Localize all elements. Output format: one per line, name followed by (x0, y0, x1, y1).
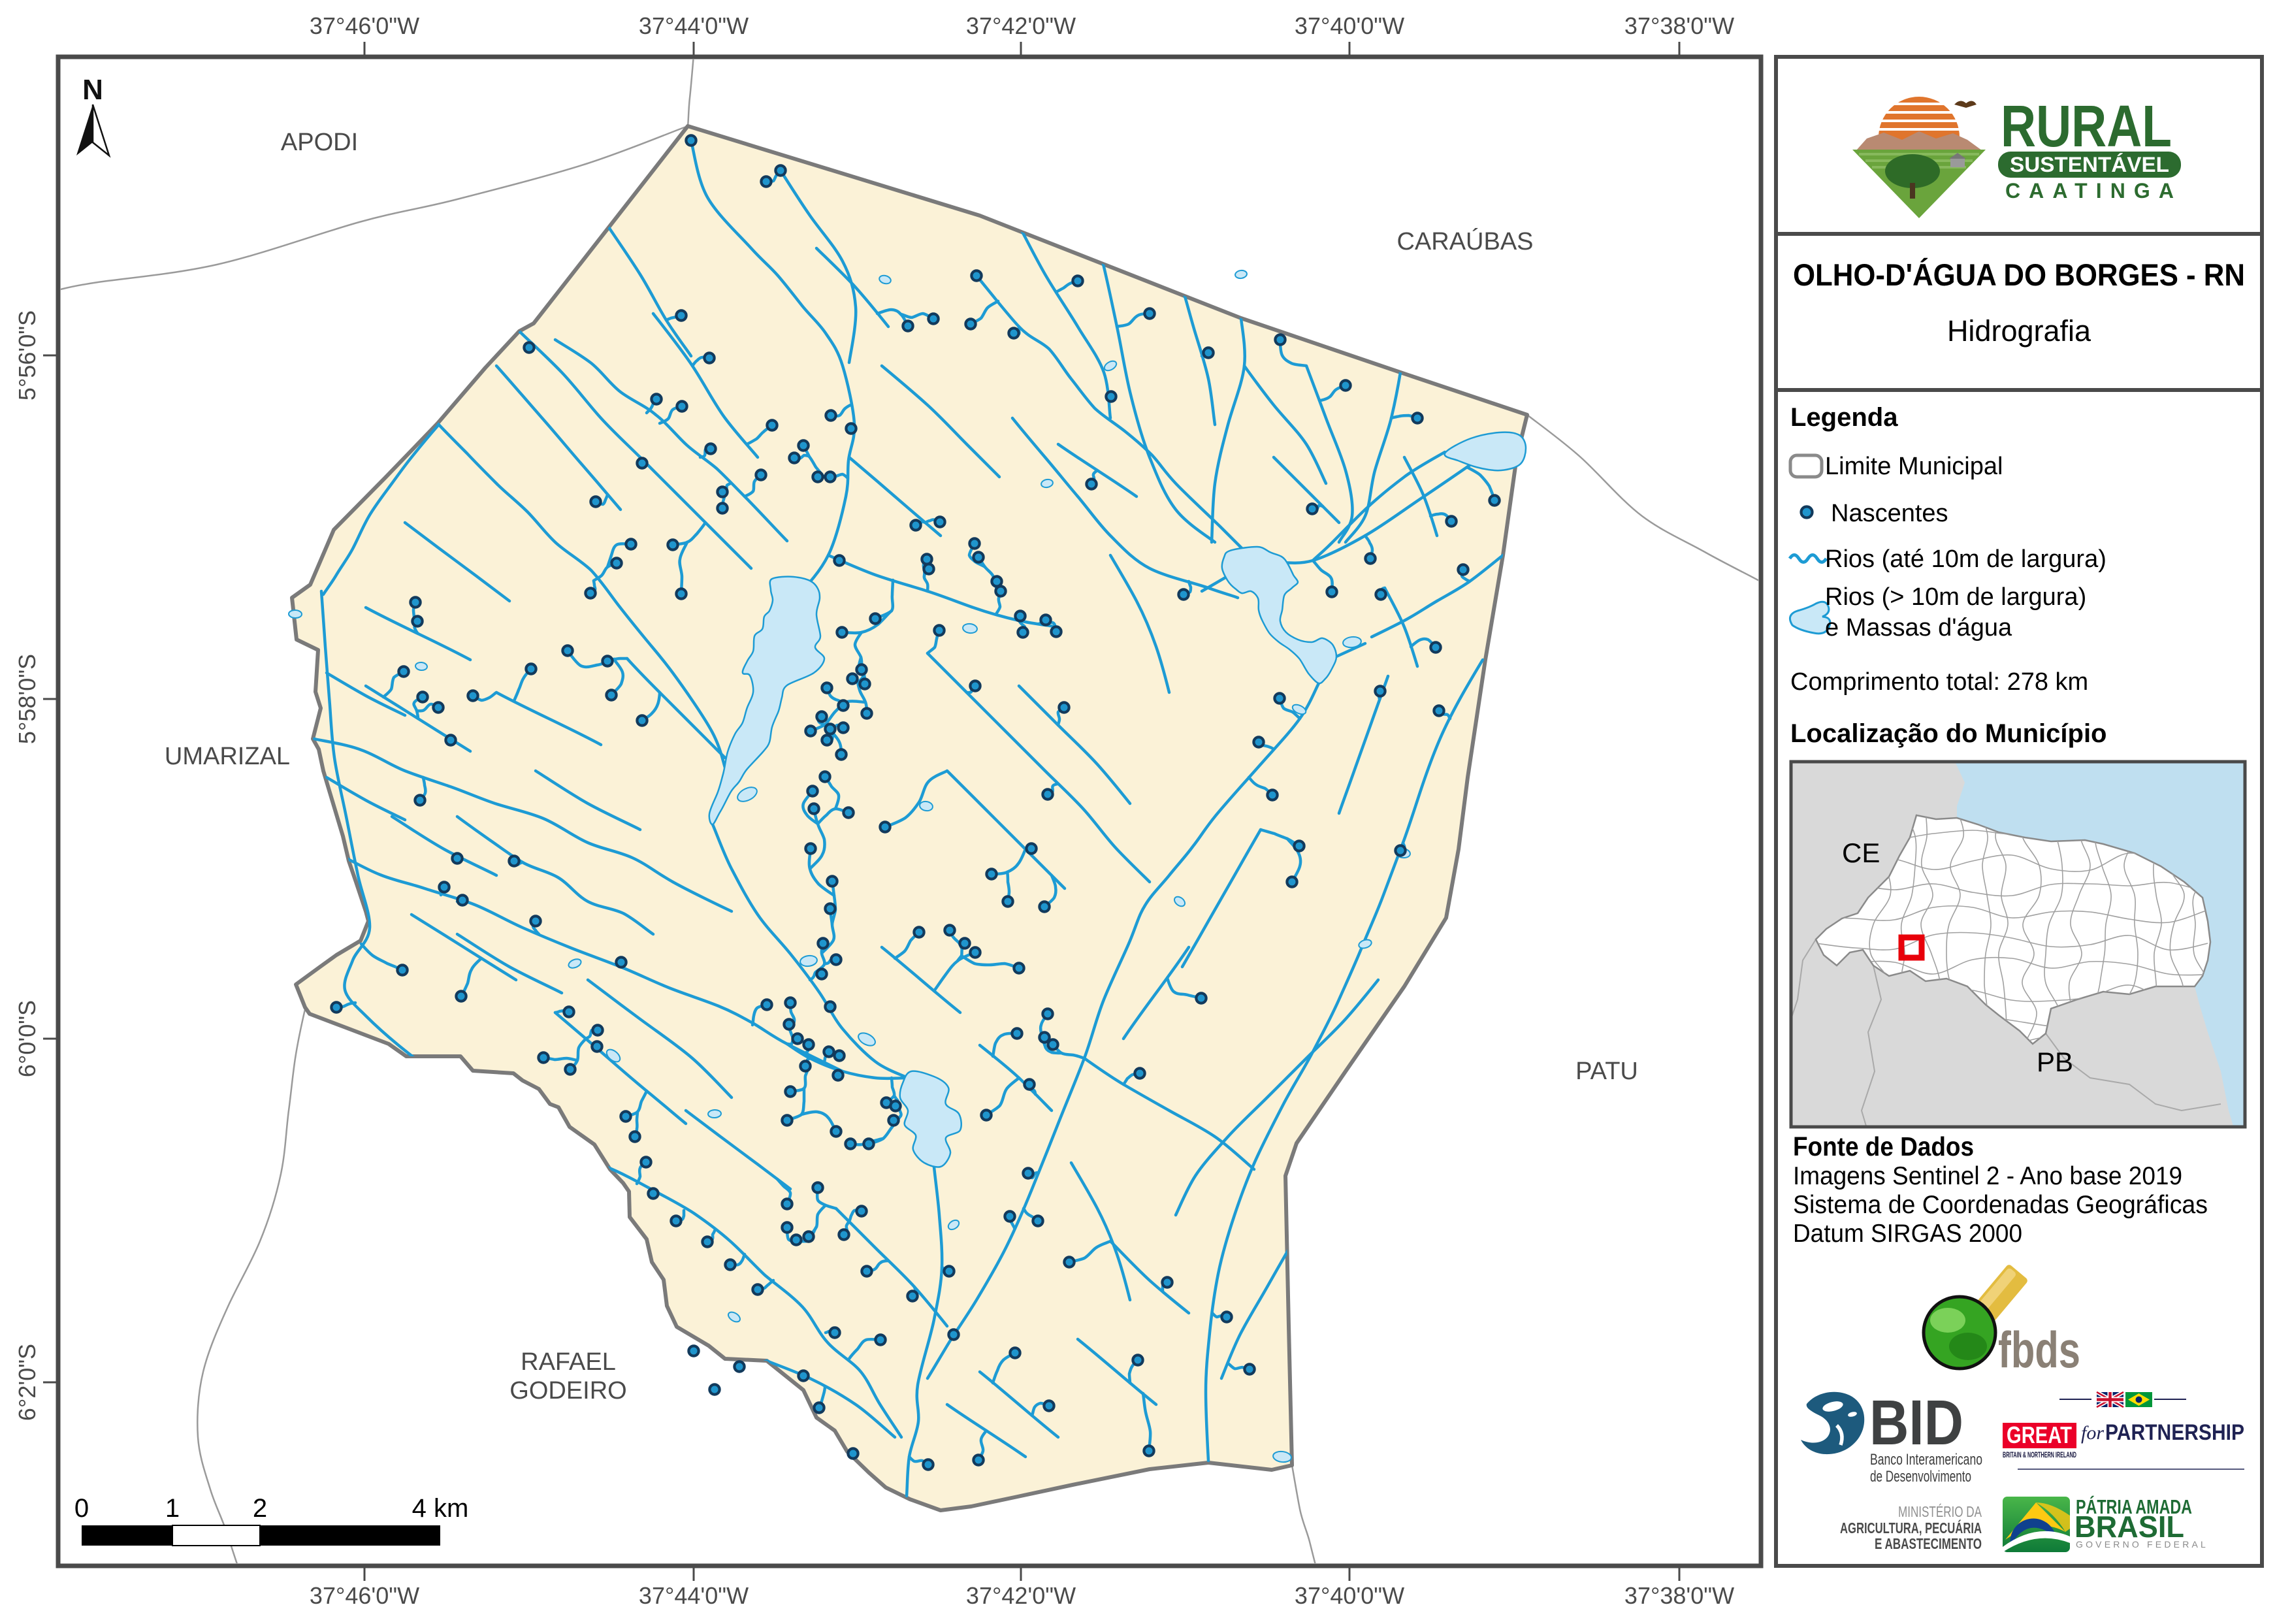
svg-text:GODEIRO: GODEIRO (509, 1377, 626, 1405)
svg-text:Fonte de Dados: Fonte de Dados (1793, 1131, 1974, 1161)
svg-text:37°46'0"W: 37°46'0"W (310, 12, 419, 39)
svg-text:SUSTENTÁVEL: SUSTENTÁVEL (2010, 153, 2169, 176)
svg-text:BRITAIN & NORTHERN IRELAND: BRITAIN & NORTHERN IRELAND (2003, 1450, 2076, 1459)
svg-text:6°0'0"S: 6°0'0"S (14, 1000, 40, 1077)
svg-text:Imagens Sentinel 2 - Ano base: Imagens Sentinel 2 - Ano base 2019 (1793, 1162, 2182, 1190)
svg-text:Localização do Município: Localização do Município (1790, 719, 2107, 748)
svg-text:37°46'0"W: 37°46'0"W (310, 1582, 419, 1609)
svg-text:37°42'0"W: 37°42'0"W (966, 12, 1076, 39)
svg-text:6°2'0"S: 6°2'0"S (14, 1344, 40, 1421)
svg-text:37°38'0"W: 37°38'0"W (1624, 12, 1734, 39)
svg-text:5°58'0"S: 5°58'0"S (14, 654, 40, 744)
svg-text:UMARIZAL: UMARIZAL (165, 743, 290, 770)
svg-text:RAFAEL: RAFAEL (521, 1348, 616, 1376)
svg-text:37°44'0"W: 37°44'0"W (639, 1582, 749, 1609)
svg-text:0: 0 (74, 1494, 89, 1523)
svg-text:GOVERNO FEDERAL: GOVERNO FEDERAL (2076, 1539, 2208, 1550)
svg-text:Rios (> 10m de largura): Rios (> 10m de largura) (1825, 583, 2086, 611)
svg-text:Limite Municipal: Limite Municipal (1825, 453, 2003, 480)
svg-text:4 km: 4 km (412, 1494, 469, 1523)
svg-text:RURAL: RURAL (2001, 94, 2172, 159)
svg-text:for: for (2081, 1422, 2104, 1444)
svg-text:1: 1 (165, 1494, 180, 1523)
svg-text:Nascentes: Nascentes (1831, 500, 1948, 527)
svg-text:2: 2 (253, 1494, 267, 1523)
svg-text:Rios (até 10m de largura): Rios (até 10m de largura) (1825, 545, 2106, 573)
svg-text:de Desenvolvimento: de Desenvolvimento (1870, 1468, 1971, 1486)
svg-text:Legenda: Legenda (1790, 403, 1898, 432)
svg-text:E ABASTECIMENTO: E ABASTECIMENTO (1875, 1535, 1982, 1552)
svg-text:Comprimento total: 278 km: Comprimento total: 278 km (1790, 668, 2088, 696)
svg-text:5°56'0"S: 5°56'0"S (14, 310, 40, 400)
svg-text:37°40'0"W: 37°40'0"W (1295, 12, 1404, 39)
svg-text:37°42'0"W: 37°42'0"W (966, 1582, 1076, 1609)
svg-text:PB: PB (2037, 1047, 2073, 1077)
svg-text:Hidrografia: Hidrografia (1947, 314, 2091, 348)
svg-text:N: N (82, 74, 103, 106)
svg-text:CE: CE (1842, 837, 1880, 868)
svg-text:PARTNERSHIP: PARTNERSHIP (2105, 1420, 2244, 1445)
svg-text:Banco Interamericano: Banco Interamericano (1870, 1451, 1982, 1469)
svg-text:CARAÚBAS: CARAÚBAS (1396, 227, 1533, 255)
svg-text:37°38'0"W: 37°38'0"W (1624, 1582, 1734, 1609)
svg-text:GREAT: GREAT (2007, 1421, 2072, 1448)
svg-text:e Massas d'água: e Massas d'água (1825, 614, 2012, 641)
svg-text:fbds: fbds (1998, 1321, 2080, 1378)
svg-text:Sistema de Coordenadas Geográf: Sistema de Coordenadas Geográficas (1793, 1191, 2208, 1219)
svg-text:37°40'0"W: 37°40'0"W (1295, 1582, 1404, 1609)
svg-text:BID: BID (1869, 1387, 1963, 1458)
svg-text:Datum SIRGAS 2000: Datum SIRGAS 2000 (1793, 1220, 2022, 1248)
svg-text:37°44'0"W: 37°44'0"W (639, 12, 749, 39)
svg-text:PATU: PATU (1575, 1058, 1638, 1085)
svg-text:APODI: APODI (281, 129, 358, 156)
svg-text:AGRICULTURA, PECUÁRIA: AGRICULTURA, PECUÁRIA (1840, 1519, 1982, 1536)
svg-text:OLHO-D'ÁGUA DO BORGES - RN: OLHO-D'ÁGUA DO BORGES - RN (1793, 257, 2245, 292)
svg-text:MINISTÉRIO DA: MINISTÉRIO DA (1898, 1503, 1982, 1520)
